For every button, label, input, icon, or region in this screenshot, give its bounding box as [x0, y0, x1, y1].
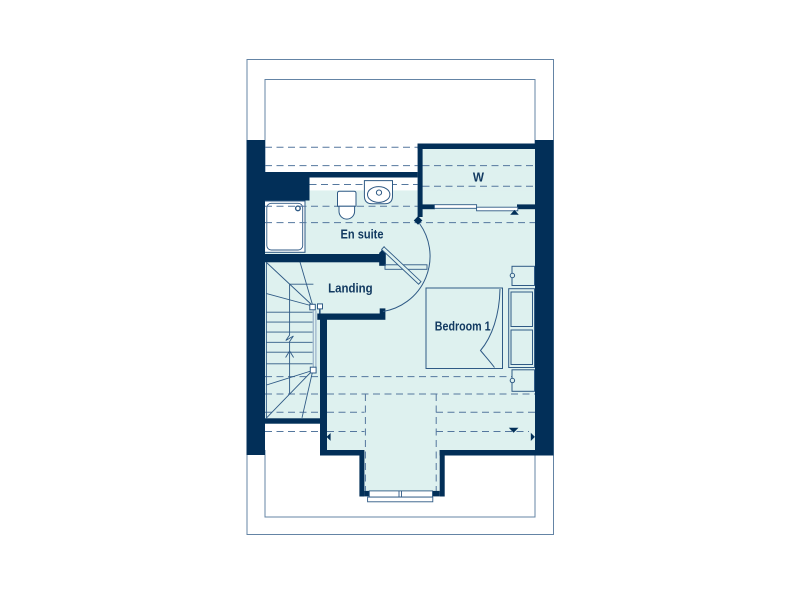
svg-text:Landing: Landing [328, 280, 373, 295]
svg-text:En suite: En suite [341, 226, 384, 241]
svg-text:W: W [473, 169, 485, 184]
svg-text:Bedroom 1: Bedroom 1 [435, 318, 491, 333]
